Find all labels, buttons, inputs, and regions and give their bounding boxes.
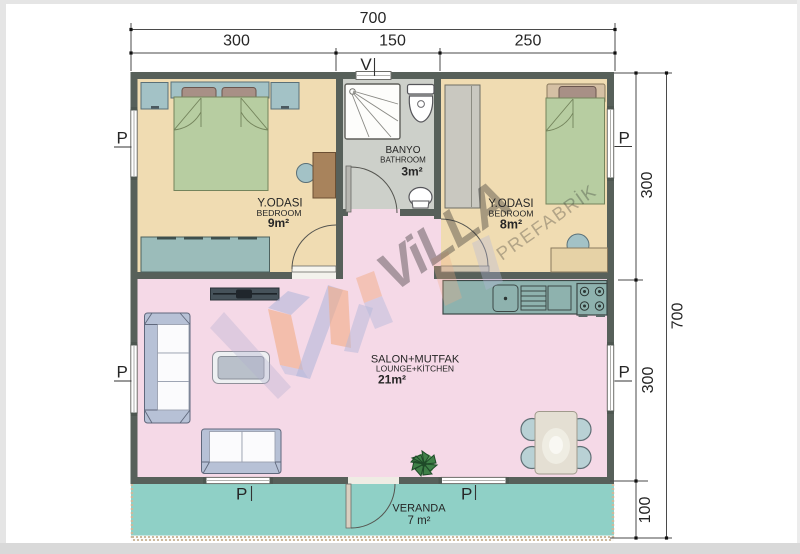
svg-text:300: 300 xyxy=(640,367,657,394)
svg-text:P: P xyxy=(117,363,128,382)
svg-text:7 m²: 7 m² xyxy=(408,515,431,527)
svg-text:21m²: 21m² xyxy=(378,373,406,387)
svg-text:P: P xyxy=(236,485,247,504)
svg-text:8m²: 8m² xyxy=(500,218,522,232)
svg-text:BANYO: BANYO xyxy=(385,145,420,156)
svg-text:P: P xyxy=(461,485,472,504)
svg-text:300: 300 xyxy=(639,172,656,199)
svg-text:100: 100 xyxy=(637,497,654,524)
svg-text:P: P xyxy=(619,129,630,148)
svg-text:VERANDA: VERANDA xyxy=(392,503,446,515)
svg-text:150: 150 xyxy=(379,33,406,50)
svg-text:250: 250 xyxy=(515,33,542,50)
svg-text:700: 700 xyxy=(670,303,687,330)
svg-text:P: P xyxy=(619,363,630,382)
svg-text:300: 300 xyxy=(223,33,250,50)
svg-text:3m²: 3m² xyxy=(401,165,422,179)
svg-text:700: 700 xyxy=(360,10,387,27)
svg-text:9m²: 9m² xyxy=(268,216,289,230)
svg-text:BATHROOM: BATHROOM xyxy=(380,156,426,165)
svg-text:V: V xyxy=(360,55,372,74)
svg-text:P: P xyxy=(117,129,128,148)
